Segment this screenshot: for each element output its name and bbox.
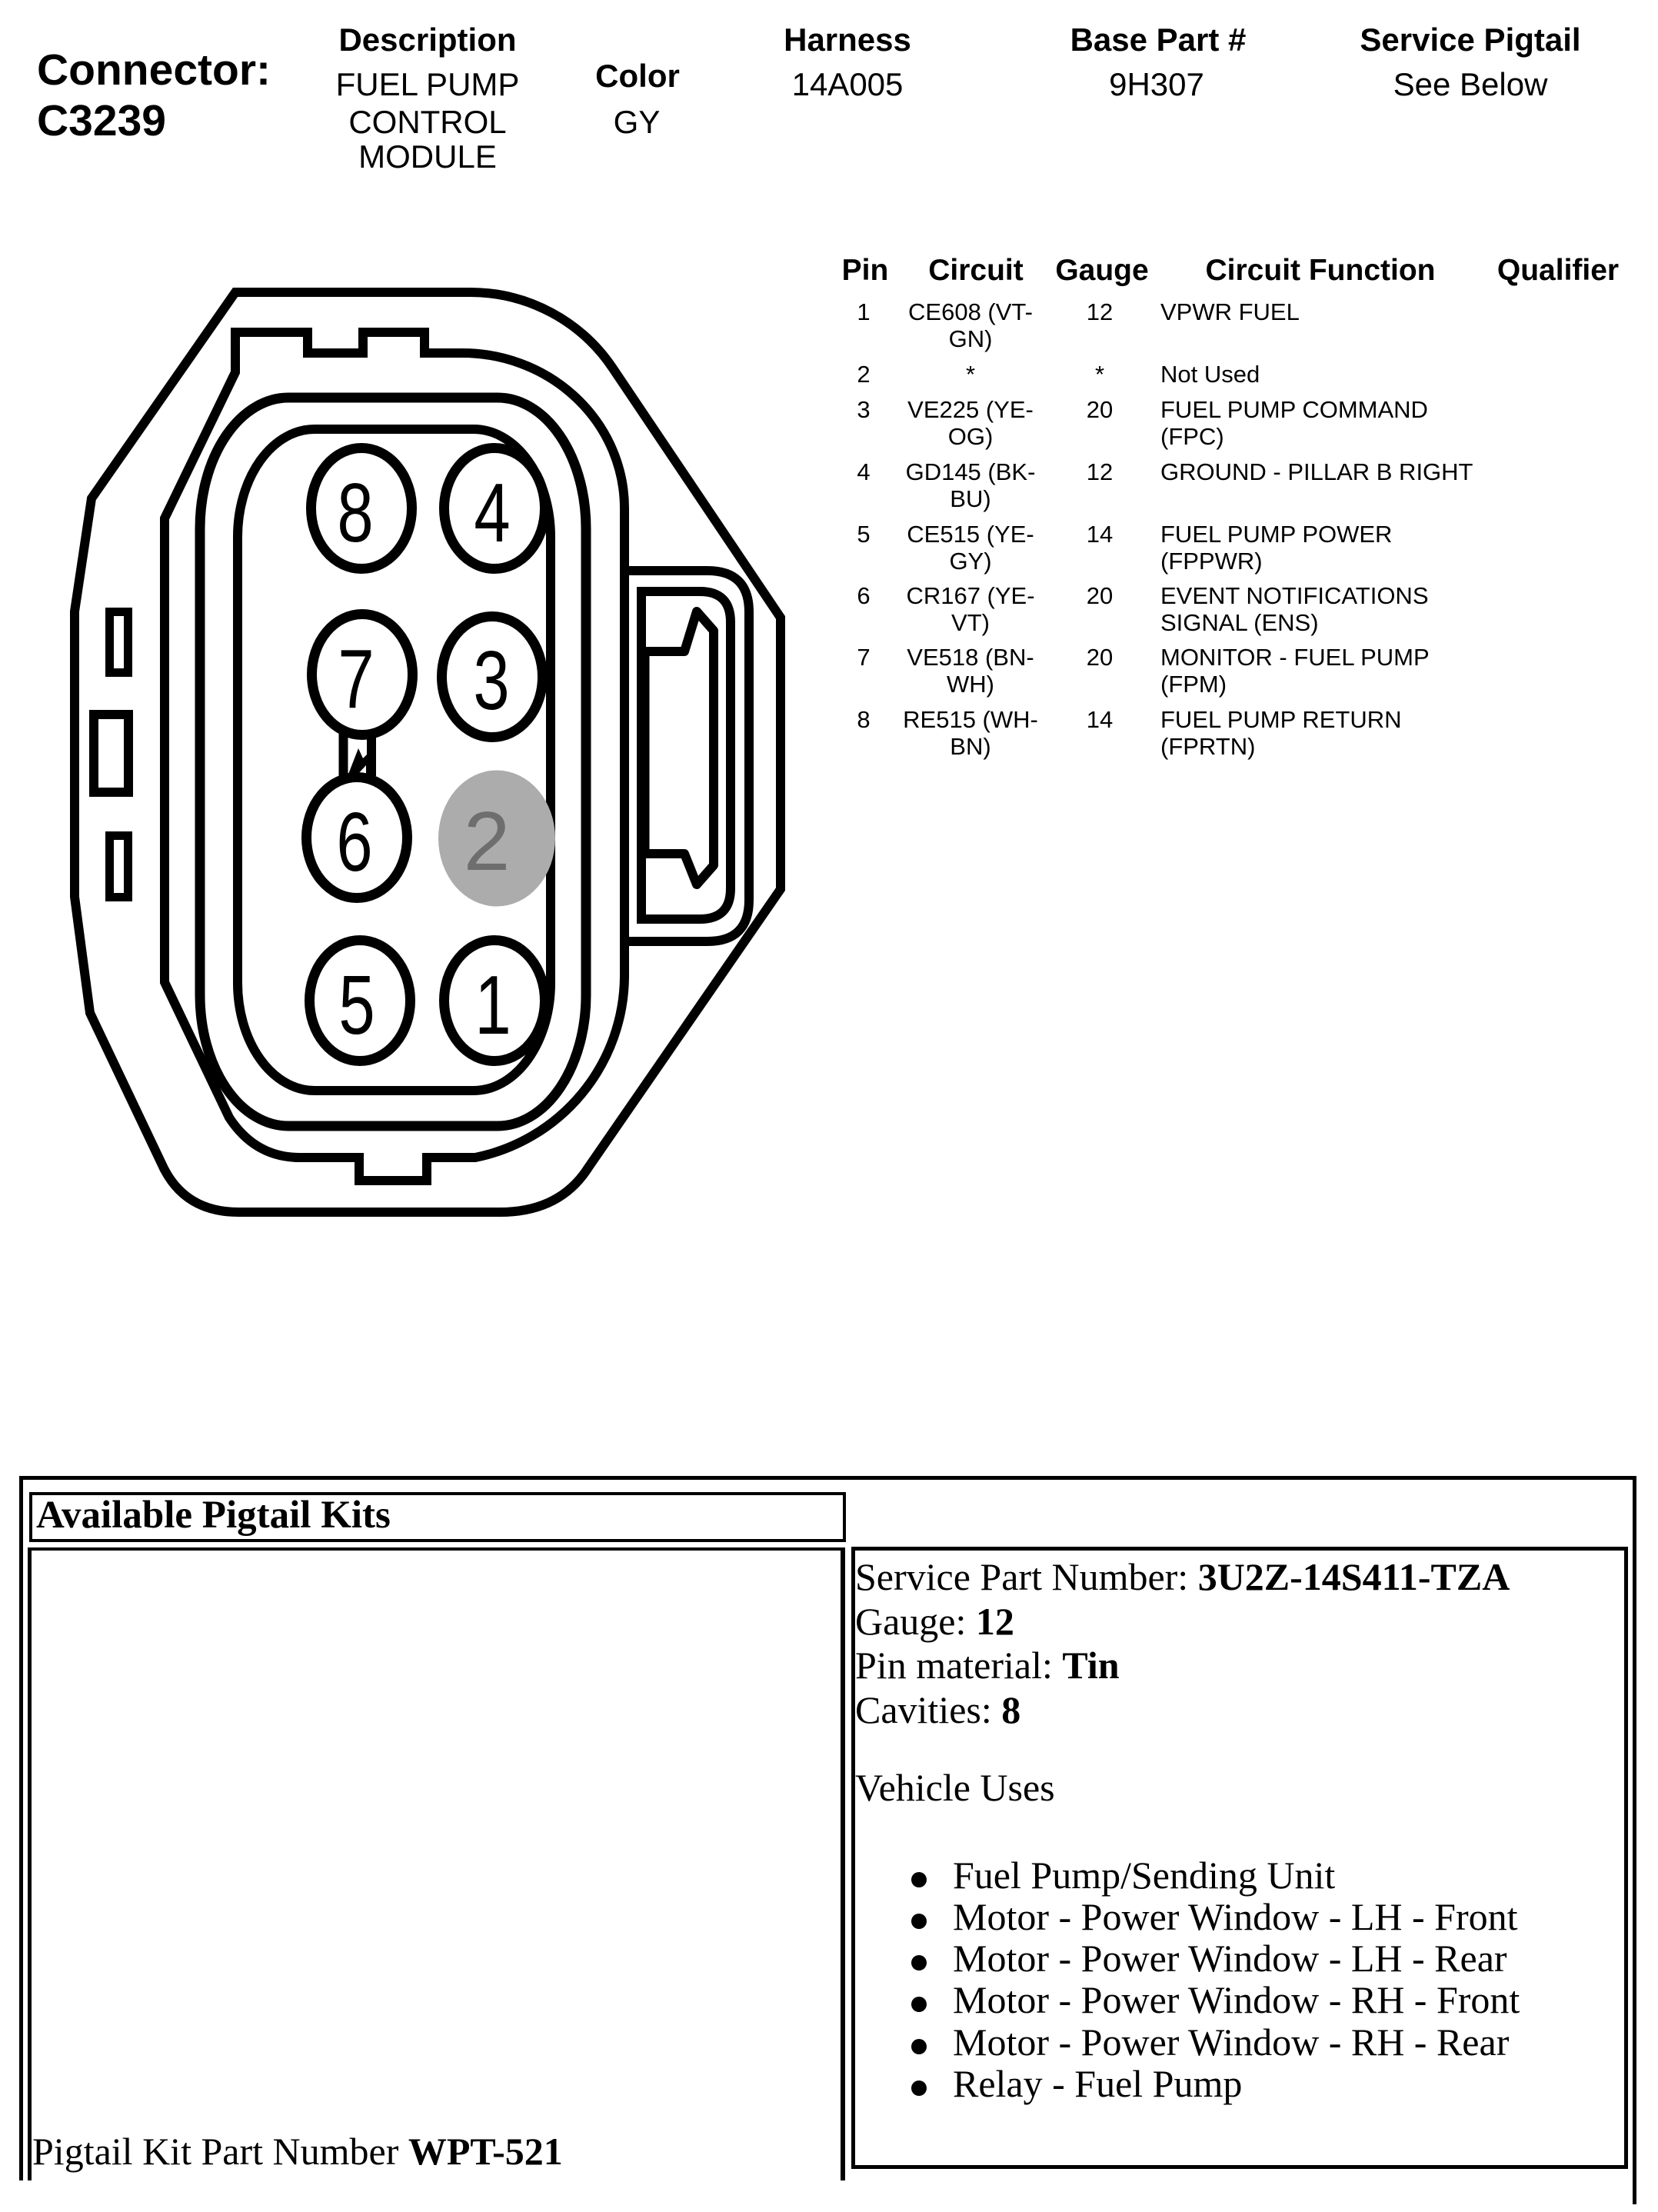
svg-text:2: 2 <box>464 795 511 888</box>
svg-text:3: 3 <box>473 634 509 728</box>
svg-text:8: 8 <box>337 466 373 560</box>
svg-text:7: 7 <box>338 632 374 726</box>
svg-text:5: 5 <box>338 958 375 1052</box>
svg-text:1: 1 <box>474 958 511 1052</box>
svg-text:4: 4 <box>474 466 510 560</box>
svg-text:6: 6 <box>336 795 372 889</box>
